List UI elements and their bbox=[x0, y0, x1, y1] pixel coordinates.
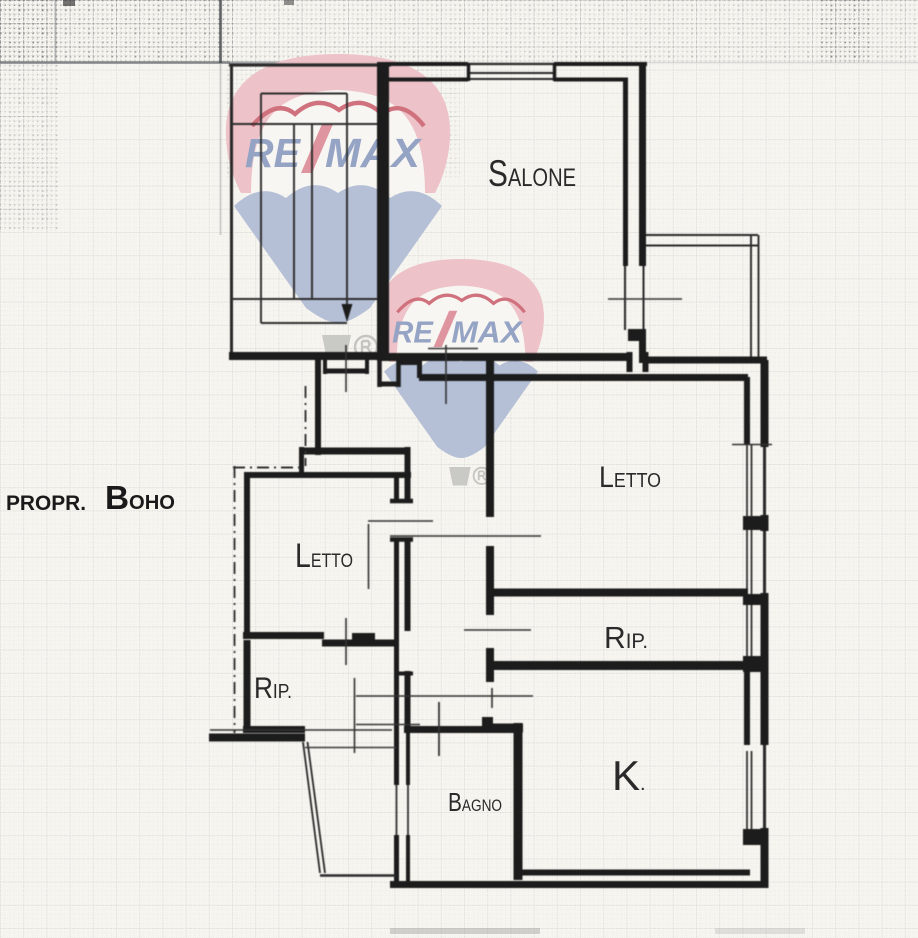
svg-text:PROPR.: PROPR. bbox=[6, 491, 86, 515]
